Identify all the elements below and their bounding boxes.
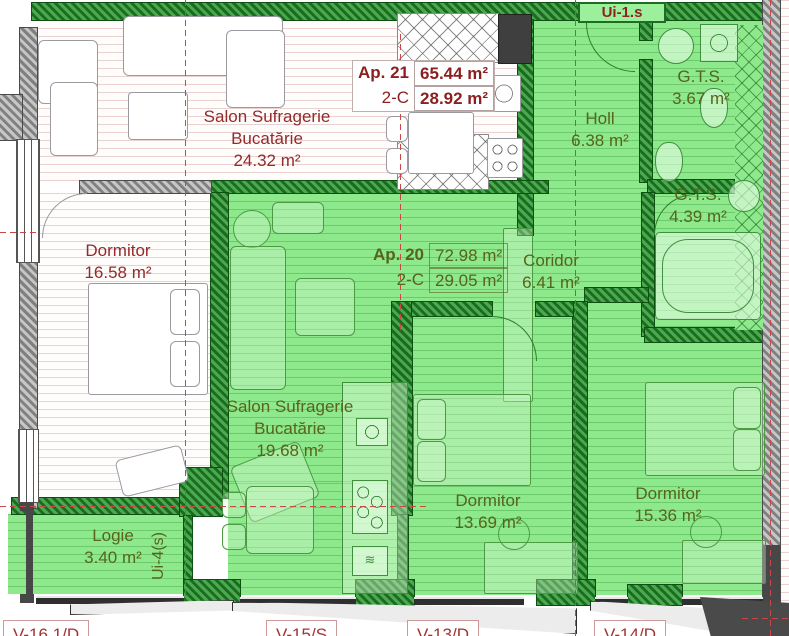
apartment-partial-area: 28.92 m² bbox=[414, 86, 494, 111]
washing-machine bbox=[700, 24, 738, 62]
window-label: V-13/D bbox=[407, 620, 479, 636]
room-label-coridor: Coridor 6.41 m² bbox=[502, 250, 600, 294]
wall-segment bbox=[645, 328, 763, 342]
sofa-chaise bbox=[226, 30, 285, 108]
room-area: 6.41 m² bbox=[502, 272, 600, 294]
apartment-id: Ap. 20 bbox=[368, 243, 429, 268]
axis-line bbox=[742, 618, 789, 619]
room-area: 3.67 m² bbox=[645, 88, 757, 110]
room-name: G.T.S. bbox=[640, 184, 756, 206]
room-name: Dormitor bbox=[57, 240, 179, 262]
room-area: 13.69 m² bbox=[424, 512, 552, 534]
rail-post bbox=[20, 594, 34, 603]
room-name: G.T.S. bbox=[645, 66, 757, 88]
apartment-info-ap21: Ap. 21 65.44 m² 2-C 28.92 m² bbox=[352, 60, 495, 112]
pillow bbox=[417, 399, 446, 440]
coffee-table bbox=[128, 92, 188, 140]
room-label-dorm21: Dormitor 16.58 m² bbox=[57, 240, 179, 284]
pillow bbox=[733, 429, 761, 471]
side-table bbox=[272, 202, 324, 234]
room-label-dorm20a: Dormitor 13.69 m² bbox=[424, 490, 552, 534]
door-label-ui4s: Ui-4(s) bbox=[150, 514, 168, 598]
window bbox=[19, 430, 38, 502]
sofa bbox=[230, 246, 286, 390]
wall-pier bbox=[628, 585, 682, 605]
pillow bbox=[417, 441, 446, 482]
armchair bbox=[50, 82, 98, 156]
room-area: 19.68 m² bbox=[206, 440, 374, 462]
room-name: Bucatărie bbox=[206, 418, 374, 440]
exterior-wall-stub bbox=[0, 95, 22, 140]
room-name: Holl bbox=[550, 108, 650, 130]
fridge: ≋ bbox=[352, 546, 388, 576]
apartment-total-area: 65.44 m² bbox=[414, 61, 494, 86]
room-name: Coridor bbox=[502, 250, 600, 272]
axis-line bbox=[0, 232, 40, 233]
armchair bbox=[233, 210, 271, 248]
room-label-salon20: Salon Sufragerie Bucatărie 19.68 m² bbox=[206, 396, 374, 462]
window-label: V-16.1/D bbox=[3, 620, 89, 636]
room-name: Salon Sufragerie bbox=[206, 396, 374, 418]
dining-table bbox=[408, 112, 474, 174]
room-name: Dormitor bbox=[604, 483, 732, 505]
washbasin bbox=[658, 28, 694, 64]
neighbor-area bbox=[780, 0, 789, 636]
room-label-holl: Holl 6.38 m² bbox=[550, 108, 650, 152]
room-area: 6.38 m² bbox=[550, 130, 650, 152]
wall-segment bbox=[80, 181, 211, 193]
room-name: Dormitor bbox=[424, 490, 552, 512]
room-label-salon21: Salon Sufragerie Bucatărie 24.32 m² bbox=[186, 106, 348, 172]
pillow bbox=[733, 387, 761, 429]
window bbox=[17, 140, 39, 262]
stove bbox=[352, 480, 388, 534]
room-area: 15.36 m² bbox=[604, 505, 732, 527]
room-label-dorm20b: Dormitor 15.36 m² bbox=[604, 483, 732, 527]
apartment-total-area: 72.98 m² bbox=[429, 243, 508, 268]
window-label: V-15/S bbox=[266, 620, 337, 636]
wall-segment bbox=[211, 181, 548, 193]
window-label: V-14/D bbox=[594, 620, 666, 636]
axis-line bbox=[770, 0, 771, 636]
chair bbox=[222, 492, 246, 518]
chair bbox=[386, 148, 408, 174]
room-area: 4.39 m² bbox=[640, 206, 756, 228]
axis-line bbox=[575, 0, 576, 636]
fridge bbox=[498, 14, 532, 64]
window bbox=[414, 597, 524, 605]
balcony-slab bbox=[700, 597, 789, 636]
floor-plan: ≋ Ap. 21 65.44 m² 2-C 28.92 m² Ap. 20 72… bbox=[0, 0, 789, 636]
chair bbox=[386, 116, 408, 142]
axis-line bbox=[0, 506, 428, 507]
axis-line bbox=[185, 0, 186, 598]
wall-segment bbox=[662, 3, 763, 20]
door-label-ui1s: Ui-1.s bbox=[578, 2, 666, 23]
bathtub-inner bbox=[662, 239, 754, 313]
room-name: Bucatărie bbox=[186, 128, 348, 150]
room-area: 16.58 m² bbox=[57, 262, 179, 284]
bathtub bbox=[655, 232, 761, 320]
apartment-partial-area: 29.05 m² bbox=[429, 268, 508, 293]
apartment-info-ap20: Ap. 20 72.98 m² 2-C 29.05 m² bbox=[368, 243, 508, 293]
wall-segment bbox=[536, 302, 573, 316]
dining-table bbox=[246, 486, 314, 554]
room-label-gts1: G.T.S. 3.67 m² bbox=[645, 66, 757, 110]
room-label-gts2: G.T.S. 4.39 m² bbox=[640, 184, 756, 228]
apartment-id: Ap. 21 bbox=[353, 61, 414, 86]
wall-segment bbox=[412, 302, 492, 316]
kitchen-cabinet bbox=[398, 14, 498, 62]
coffee-table bbox=[295, 278, 355, 336]
chair bbox=[222, 524, 246, 550]
room-area: 24.32 m² bbox=[186, 150, 348, 172]
stove bbox=[487, 138, 523, 178]
apartment-type: 2-C bbox=[353, 86, 414, 111]
apartment-type: 2-C bbox=[368, 268, 429, 293]
wall-segment bbox=[640, 22, 652, 40]
toilet bbox=[655, 142, 683, 182]
room-name: Salon Sufragerie bbox=[186, 106, 348, 128]
desk bbox=[682, 540, 766, 584]
loggia-rail bbox=[26, 508, 33, 598]
desk bbox=[484, 542, 578, 594]
